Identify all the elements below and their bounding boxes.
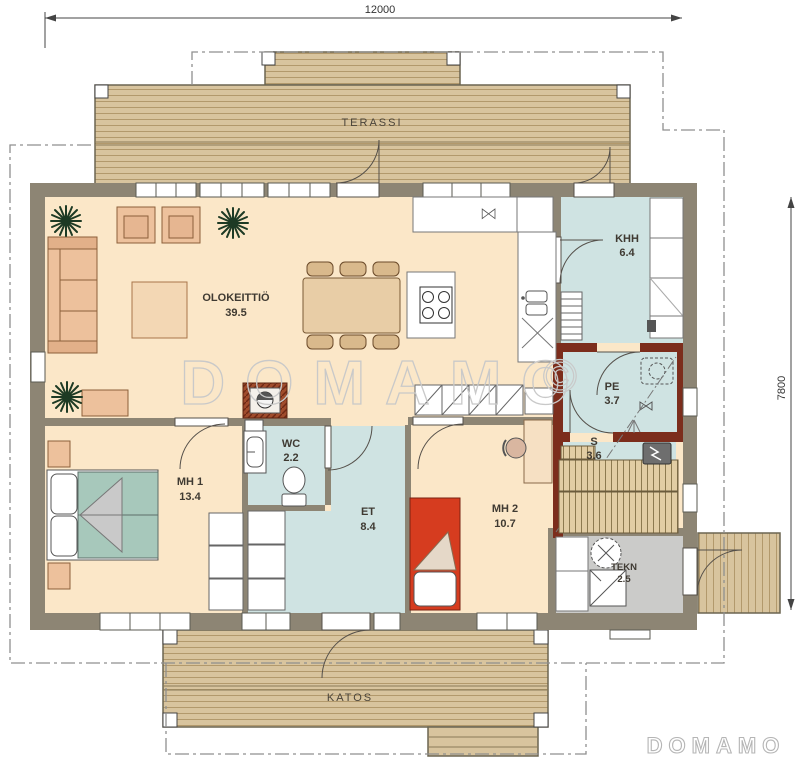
label-wc: WC	[282, 438, 300, 450]
area-olokeittio: 39.5	[225, 307, 246, 319]
watermark: DOMAMO ©	[180, 349, 589, 418]
floor-plan: 12000 7800	[0, 0, 800, 761]
area-pe: 3.7	[604, 395, 619, 407]
label-olokeittio: OLOKEITTIÖ	[202, 291, 270, 304]
area-s: 3.6	[586, 450, 601, 462]
area-khh: 6.4	[619, 247, 635, 259]
side-porch	[698, 533, 780, 613]
label-terassi: TERASSI	[341, 117, 402, 129]
label-khh: KHH	[615, 233, 639, 245]
label-s: S	[590, 436, 597, 448]
watermark-copyright-icon: ©	[543, 350, 577, 402]
area-wc: 2.2	[283, 452, 298, 464]
dimension-top: 12000	[45, 4, 682, 48]
label-mh1: MH 1	[177, 476, 203, 488]
area-mh1: 13.4	[179, 491, 201, 503]
label-pe: PE	[605, 381, 620, 393]
area-mh2: 10.7	[494, 518, 515, 530]
label-mh2: MH 2	[492, 503, 518, 515]
dim-width-label: 12000	[365, 4, 396, 16]
dim-height-label: 7800	[776, 376, 788, 400]
label-katos: KATOS	[327, 692, 373, 704]
area-et: 8.4	[360, 521, 376, 533]
floor-plan-drawing: 12000 7800	[0, 0, 800, 761]
area-tekn: 2.5	[617, 574, 631, 585]
watermark-text: DOMAMO	[180, 349, 589, 418]
label-et: ET	[361, 506, 375, 518]
label-tekn: TEKN	[611, 562, 637, 573]
domamo-logo: DOMAMO	[647, 733, 786, 758]
